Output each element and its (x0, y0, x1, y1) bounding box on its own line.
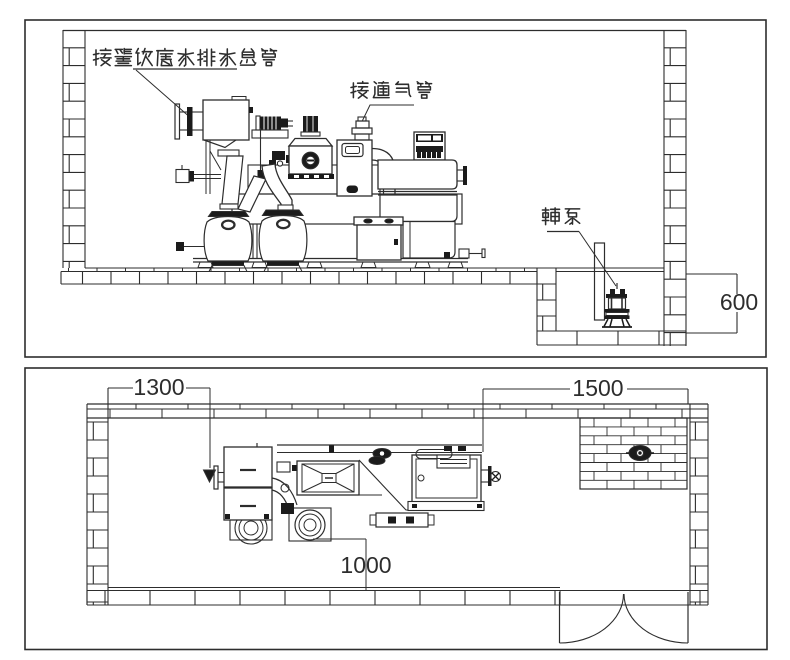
svg-text:1300: 1300 (133, 374, 184, 400)
svg-text:1000: 1000 (340, 552, 391, 578)
svg-text:1500: 1500 (572, 375, 623, 401)
svg-text:600: 600 (720, 289, 758, 315)
